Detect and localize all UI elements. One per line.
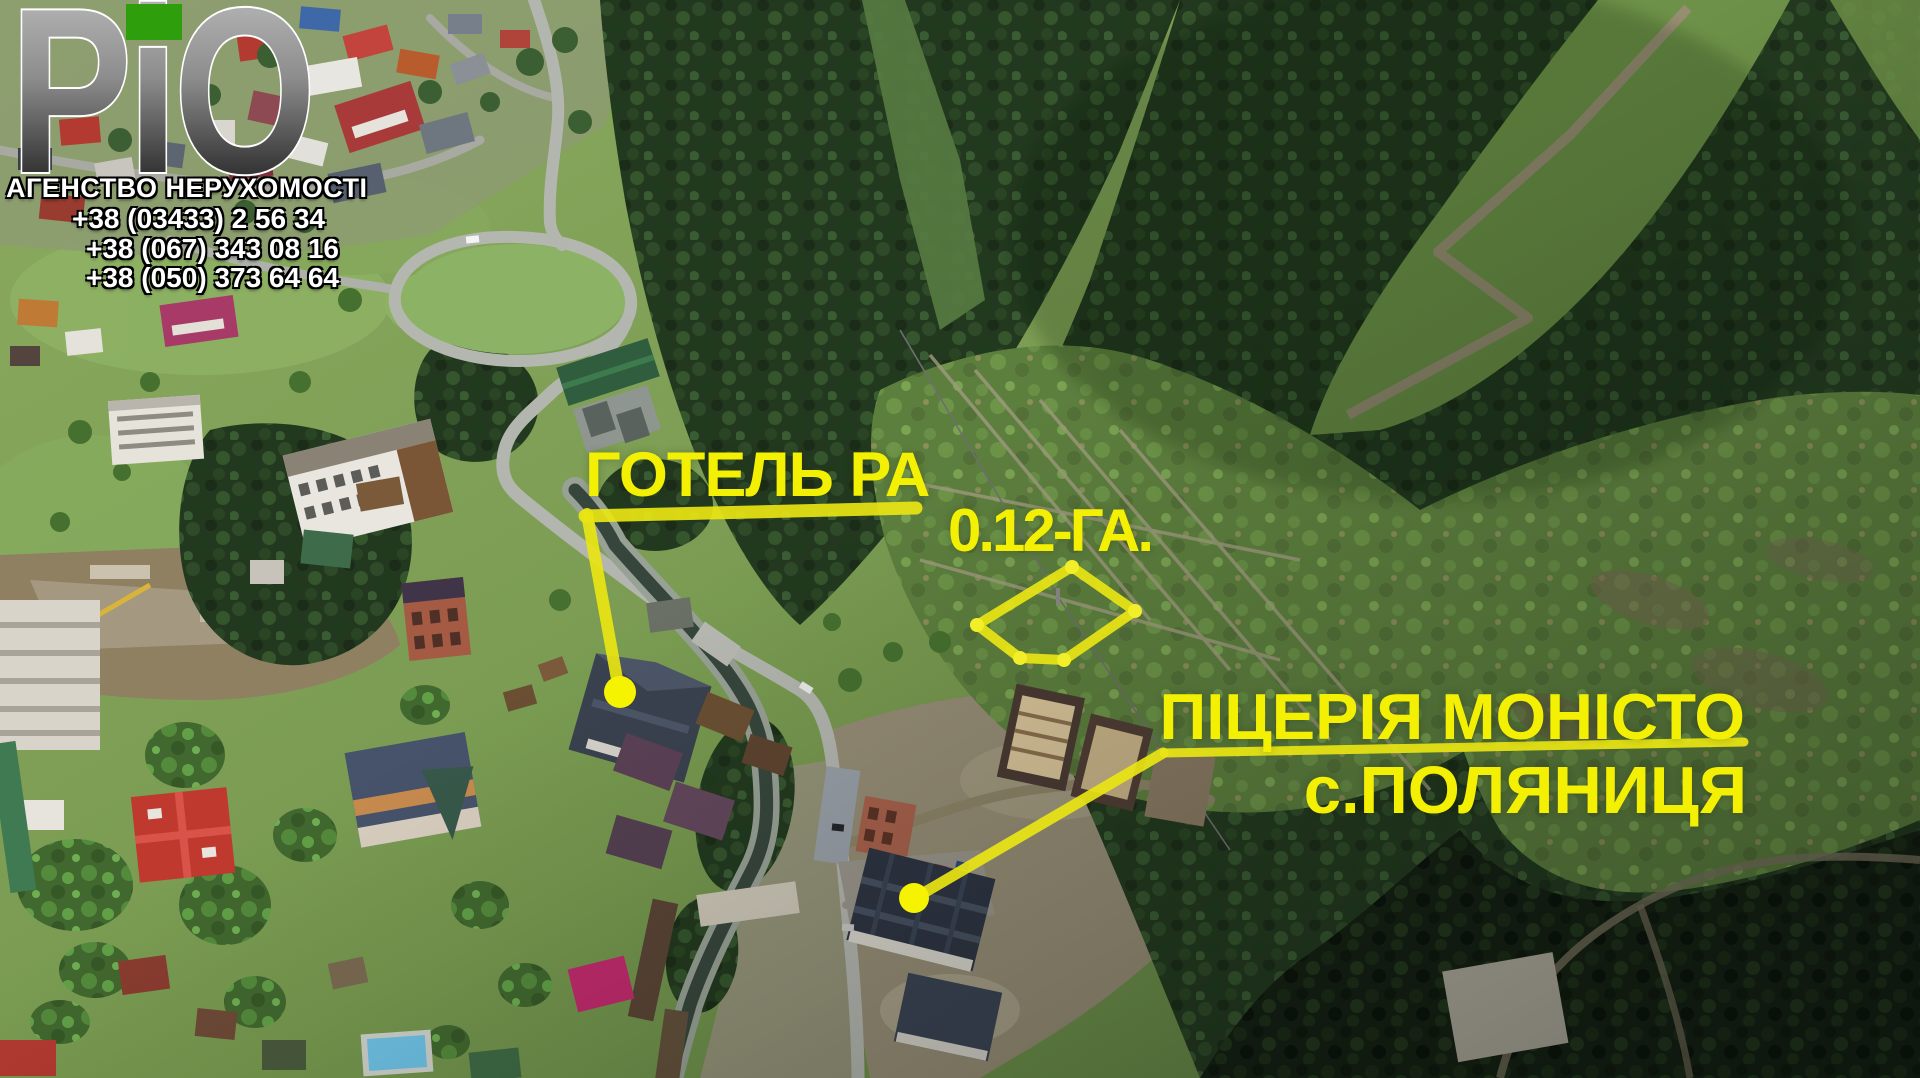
agency-phone-1: +38 (03433) 2 56 34	[72, 205, 325, 233]
pizzeria-label: ПІЦЕРІЯ МОНІСТО	[1160, 684, 1745, 749]
village-label: с.ПОЛЯНИЦЯ	[1304, 757, 1747, 824]
plot-area-label: 0.12-ГА.	[948, 501, 1151, 561]
hotel-marker-dot	[604, 676, 636, 708]
aerial-photo: РіО АГЕНСТВО НЕРУХОМОСТІ +38 (03433) 2 5…	[0, 0, 1920, 1078]
agency-tagline: АГЕНСТВО НЕРУХОМОСТІ	[6, 175, 368, 202]
hotel-ra-label: ГОТЕЛЬ РА	[585, 444, 929, 507]
agency-phone-3: +38 (050) 373 64 64	[86, 264, 339, 292]
agency-phone-2: +38 (067) 343 08 16	[86, 235, 339, 263]
logo-green-square	[126, 4, 182, 40]
pizzeria-marker-dot	[899, 883, 929, 913]
